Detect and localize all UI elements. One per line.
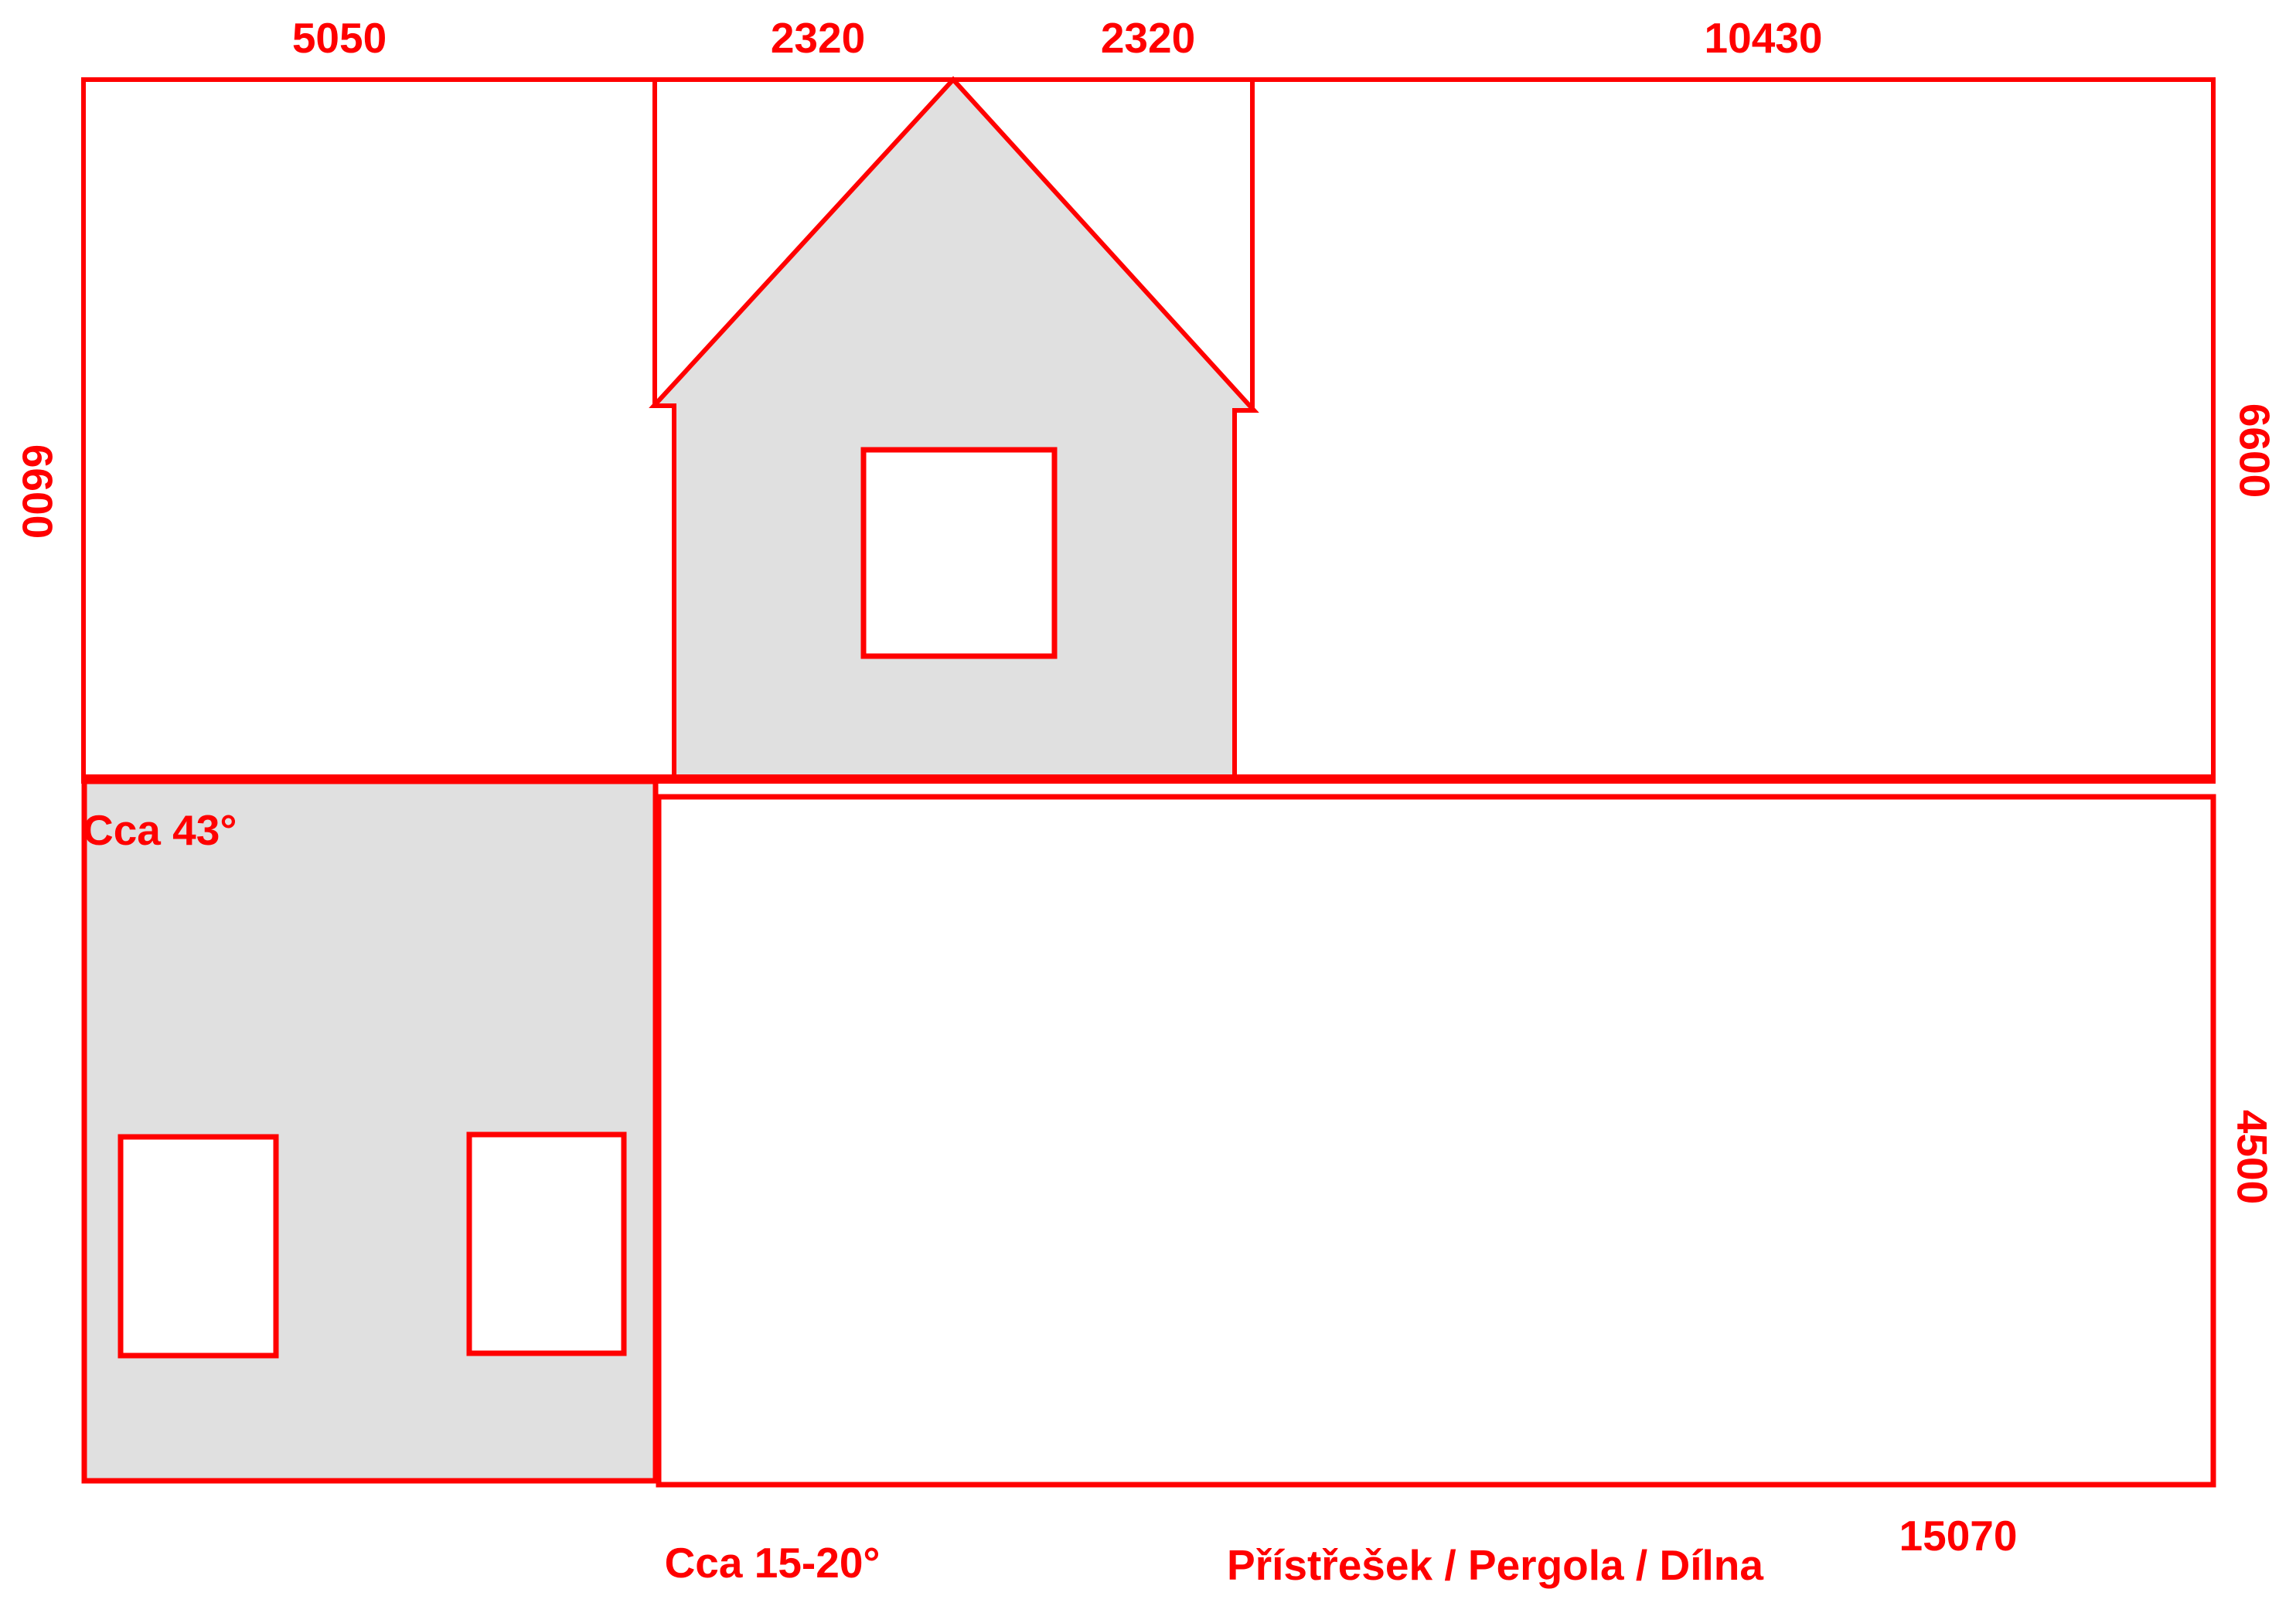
dim-bottom-width: 15070: [1899, 1515, 2018, 1557]
left-wall-window-1: [121, 1137, 276, 1356]
shed-title-label: Přístřešek / Pergola / Dílna: [1227, 1544, 1763, 1587]
elevation-drawing: [0, 0, 2296, 1623]
dim-right-height-lower: 4500: [2231, 1110, 2274, 1204]
elevation-sketch-page: 5050 2320 2320 10430 6600 6600 4500 Cca …: [0, 0, 2296, 1623]
roof-angle-label: Cca 43°: [83, 809, 237, 852]
dim-top-width-4: 10430: [1705, 17, 1823, 60]
dim-right-height-upper: 6600: [2233, 403, 2276, 498]
shed-roof-angle-label: Cca 15-20°: [665, 1542, 881, 1584]
left-wall-window-2: [469, 1135, 624, 1353]
dim-top-width-1: 5050: [292, 17, 387, 60]
dim-left-height: 6600: [16, 444, 59, 539]
dim-top-width-2: 2320: [771, 17, 865, 60]
left-wall-block: [84, 781, 656, 1481]
gable-window: [864, 450, 1054, 656]
dim-top-width-3: 2320: [1101, 17, 1195, 60]
shed-outline: [659, 797, 2213, 1485]
